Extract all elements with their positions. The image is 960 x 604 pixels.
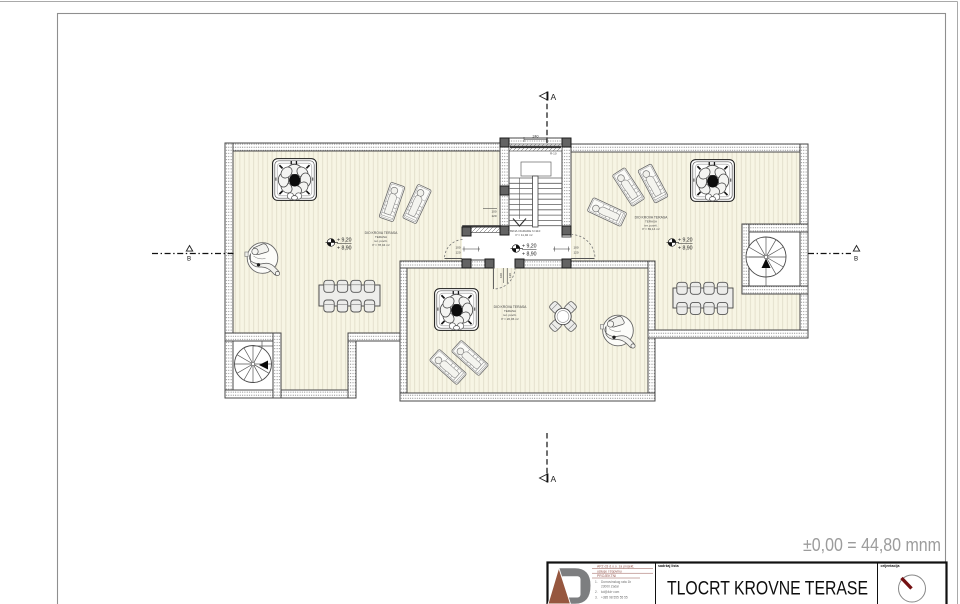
svg-text:±0,00 = 44,80 mnm: ±0,00 = 44,80 mnm	[803, 535, 941, 555]
svg-text:orijentacija: orijentacija	[881, 564, 901, 568]
svg-text:P = 20,06 m²: P = 20,06 m²	[501, 317, 518, 321]
svg-text:23000 Zadar: 23000 Zadar	[601, 585, 620, 589]
svg-text:TLOCRT KROVNE TERASE: TLOCRT KROVNE TERASE	[667, 579, 868, 600]
svg-text:100: 100	[455, 246, 460, 250]
svg-text:+ 9,20: + 9,20	[522, 244, 537, 250]
svg-text:sadržaj lista: sadržaj lista	[658, 564, 680, 568]
svg-text:R-10: R-10	[550, 152, 557, 156]
svg-text:+ 8,90: + 8,90	[522, 252, 537, 258]
svg-text:B: B	[187, 256, 191, 263]
svg-text:120: 120	[508, 273, 512, 278]
svg-text:240: 240	[533, 135, 539, 139]
svg-text:A: A	[551, 92, 557, 102]
svg-text:1.: 1.	[595, 580, 598, 584]
svg-text:P = 11,92 m²: P = 11,92 m²	[516, 233, 533, 237]
svg-text:APZ d3 d.o.o. za projekt.: APZ d3 d.o.o. za projekt.	[597, 565, 634, 569]
svg-text:2.: 2.	[595, 590, 598, 594]
svg-text:120: 120	[491, 214, 496, 218]
svg-text:+ 8,90: + 8,90	[337, 246, 352, 252]
svg-text:kd@4dr·com: kd@4dr·com	[601, 590, 620, 594]
svg-text:100: 100	[499, 273, 503, 278]
svg-text:100: 100	[491, 210, 496, 214]
svg-text:usluge i trgovinu: usluge i trgovinu	[597, 569, 622, 573]
svg-text:120: 120	[574, 251, 579, 255]
svg-text:+385 98 555 55 55: +385 98 555 55 55	[601, 595, 628, 599]
svg-text:+ 8,90: + 8,90	[678, 246, 693, 252]
svg-text:+ 9,20: + 9,20	[337, 238, 352, 244]
svg-text:P = 69,14 m²: P = 69,14 m²	[642, 227, 659, 231]
svg-text:+ 9,20: + 9,20	[678, 238, 693, 244]
svg-text:3.: 3.	[595, 595, 598, 599]
svg-text:120: 120	[455, 251, 460, 255]
svg-text:Domovinskog rata 1b: Domovinskog rata 1b	[601, 580, 631, 584]
svg-text:PROJEKTNI: PROJEKTNI	[597, 574, 616, 578]
svg-text:B: B	[854, 256, 858, 263]
svg-text:A: A	[551, 474, 557, 484]
svg-text:100: 100	[574, 246, 579, 250]
svg-text:P = 78,04 m²: P = 78,04 m²	[372, 243, 389, 247]
